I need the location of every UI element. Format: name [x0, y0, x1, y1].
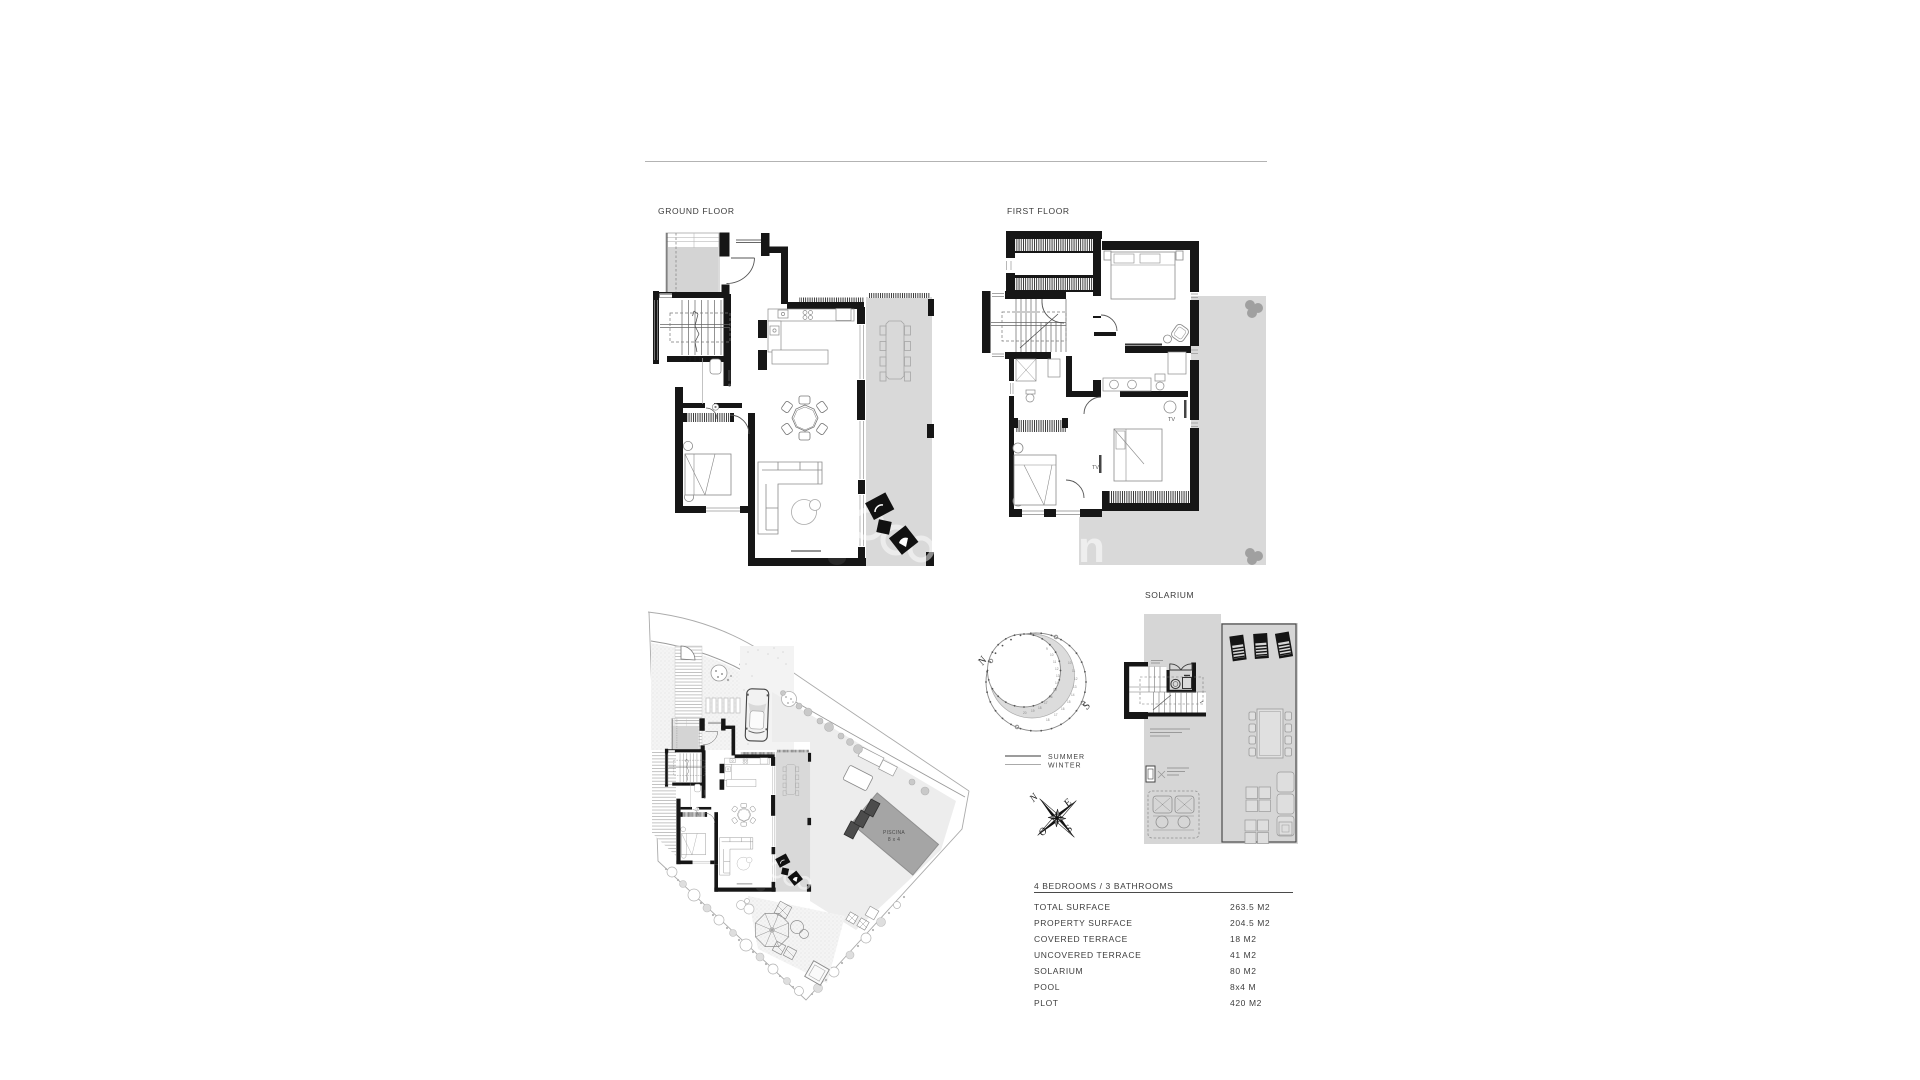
svg-text:11: 11	[1053, 660, 1057, 664]
svg-text:15: 15	[1067, 700, 1071, 704]
svg-text:18: 18	[1046, 718, 1050, 722]
svg-text:S: S	[1063, 823, 1075, 835]
svg-text:9: 9	[1046, 647, 1048, 651]
svg-text:PISCINA: PISCINA	[883, 830, 905, 836]
svg-text:13: 13	[1056, 674, 1060, 678]
svg-text:16: 16	[1061, 707, 1065, 711]
svg-text:16: 16	[1049, 695, 1053, 699]
svg-text:15: 15	[1053, 688, 1057, 692]
svg-text:TV: TV	[1092, 465, 1099, 471]
svg-text:N: N	[1027, 791, 1041, 805]
svg-text:14: 14	[1055, 681, 1059, 685]
svg-text:n: n	[1078, 523, 1105, 572]
svg-text:13: 13	[1073, 685, 1077, 689]
svg-text:10: 10	[1068, 661, 1072, 665]
svg-text:19: 19	[1031, 709, 1035, 713]
svg-text:WINTER: WINTER	[1048, 763, 1082, 770]
svg-text:11: 11	[1072, 669, 1076, 673]
svg-text:12: 12	[1055, 667, 1059, 671]
svg-text:TV: TV	[1168, 417, 1175, 423]
svg-text:S: S	[1080, 700, 1093, 712]
svg-text:17: 17	[1054, 713, 1058, 717]
svg-text:12: 12	[1074, 677, 1078, 681]
svg-text:8 x 4: 8 x 4	[888, 837, 900, 843]
svg-text:10: 10	[1050, 653, 1054, 657]
svg-text:20: 20	[1023, 711, 1027, 715]
svg-text:17: 17	[1044, 701, 1048, 705]
svg-text:E: E	[1061, 797, 1074, 810]
svg-text:SUMMER: SUMMER	[1048, 754, 1085, 761]
svg-text:14: 14	[1071, 693, 1075, 697]
svg-text:18: 18	[1038, 706, 1042, 710]
